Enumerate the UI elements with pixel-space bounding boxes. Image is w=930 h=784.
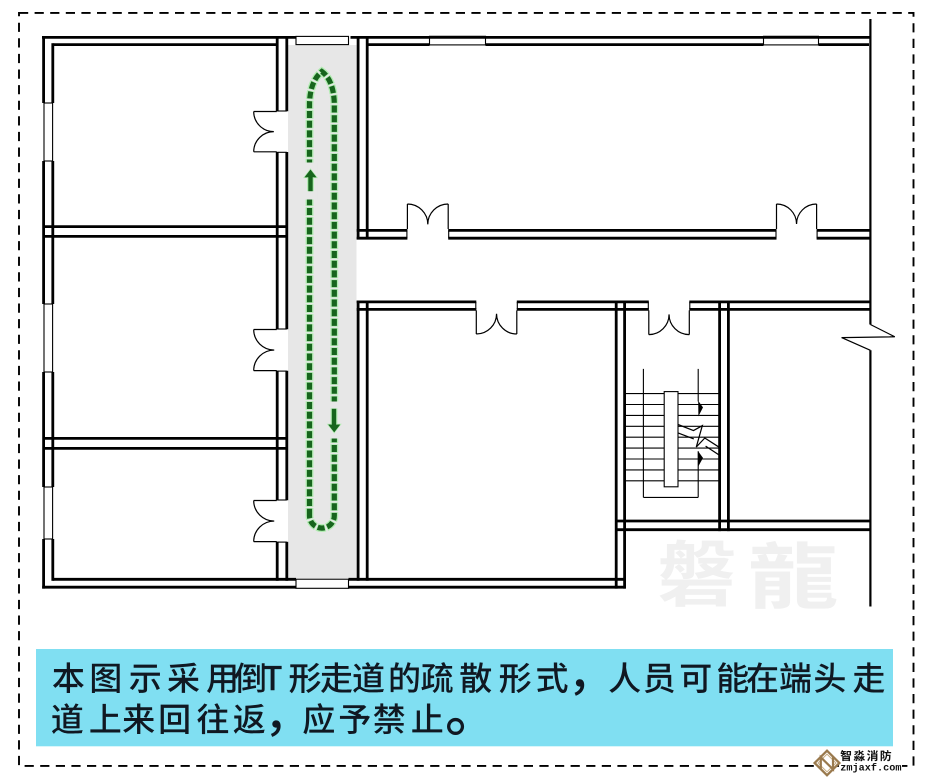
svg-text:zmjaxf.com: zmjaxf.com <box>840 763 901 775</box>
